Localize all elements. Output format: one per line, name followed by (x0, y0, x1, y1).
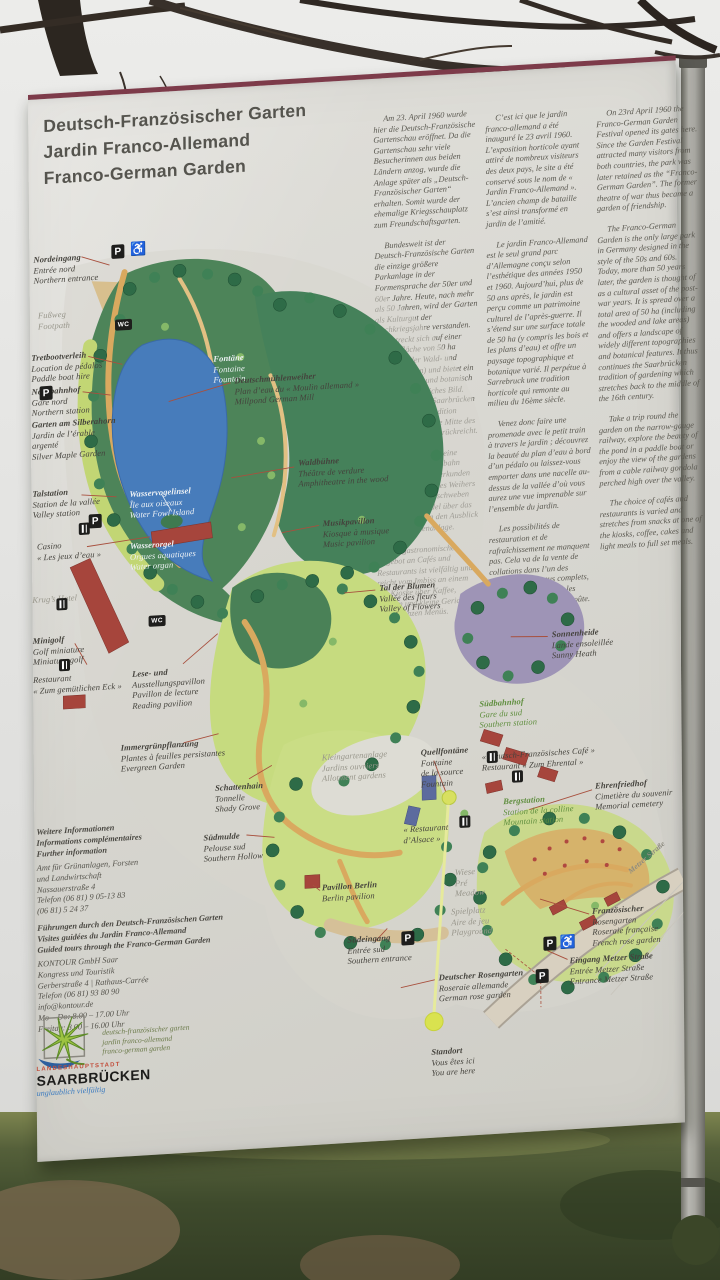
restaurant-icon (59, 659, 70, 672)
map-label-you-are-here: Standort Vous êtes ici You are here (431, 1044, 477, 1078)
parking-icon: P (89, 514, 102, 529)
restaurant-icon (487, 751, 498, 764)
restaurant-icon (459, 815, 470, 828)
saarbruecken-logo: LANDESHAUPTSTADT SAARBRÜCKEN unglaublich… (36, 1059, 150, 1099)
map-label-water-fowl-island: Wasservogelinsel Île aux oiseaux Water F… (129, 485, 196, 521)
photo-of-park-sign: Deutsch-Französischer Garten Jardin Fran… (0, 0, 720, 1280)
map-label-meadow: Wiese Pré Meadow (455, 865, 485, 898)
map-label-footpath: Fußweg Footpath (38, 309, 70, 332)
map-label-silver-maple-garden: Garten am Silberahorn Jardin de l’érable… (32, 415, 116, 462)
map-label-casino: Casino « Les jeux d’eau » (37, 538, 101, 563)
wc-icon: WC (115, 319, 132, 331)
map-label-shady-grove: Schattenhain Tonnelle Shady Grove (215, 780, 263, 814)
wc-icon: WC (149, 615, 166, 627)
parking-icon: P (401, 931, 414, 946)
you-are-here-dot (425, 1012, 443, 1031)
map-label-sunny-heath: Sonnenheide Lande ensoleillée Sunny Heat… (552, 625, 615, 660)
map-label-evergreen-garden: Immergrünpflanzung Plantes à feuilles pe… (121, 736, 228, 774)
map-label-amphitheatre: Waldbühne Théâtre de verdure Amphitheatr… (298, 452, 392, 489)
map-label-metzer-strasse-entrance: Eingang Metzer Straße Entrée Metzer Stra… (570, 950, 656, 987)
map-label-berlin-pavilion: Pavillon Berlin Berlin pavilion (322, 879, 377, 903)
parking-icon: P (111, 244, 124, 259)
map-label-water-organ: Wasserorgel Orgues aquatiques Water orga… (130, 537, 198, 573)
wheelchair-icon: ♿ (559, 935, 575, 949)
garden-logo-script: deutsch-französischer garten jardin fran… (102, 1023, 190, 1057)
board-title: Deutsch-Französischer Garten Jardin Fran… (43, 97, 307, 191)
parks-office-contact: Amt für Grünanlagen, Forsten und Landwir… (37, 858, 139, 918)
parking-icon: P (543, 936, 556, 951)
map-label-german-rose-garden: Deutscher Rosengarten Roseraie allemande… (439, 967, 524, 1004)
map-label-mountain-station: Bergstation Station de la colline Mounta… (503, 792, 575, 828)
map-label-southern-hollow: Südmulde Pelouse sud Southern Hollow (203, 829, 265, 864)
map-label-spring-fountain: Quellfontäne Fontaine de la source Fount… (421, 744, 469, 789)
information-board: Deutsch-Französischer Garten Jardin Fran… (28, 55, 685, 1162)
grass-tuft (672, 1215, 720, 1265)
map-label-north-entrance: Nordeingang Entrée nord Northern entranc… (33, 251, 100, 287)
parking-icon: P (536, 969, 549, 984)
map-label-music-pavilion: Musikpavillon Kiosque à musique Music pa… (323, 514, 392, 550)
sign-post-bracket (681, 1178, 705, 1187)
restaurant-icon (79, 522, 90, 535)
map-label-allotment-gardens: Kleingartenanlage Jardins ouvriers Allot… (322, 748, 388, 784)
map-label-paddle-boat-hire: Tretbootverleih Location de pédalos Padd… (31, 349, 103, 385)
map-label-valley-of-flowers: Tal der Blumen Vallée des fleurs Valley … (379, 579, 442, 614)
restaurant-icon (56, 598, 67, 611)
restaurant-icon (512, 770, 523, 783)
paragraph: On 23rd April 1960 the Franco-German Gar… (596, 103, 700, 215)
wheelchair-icon: ♿ (130, 242, 146, 256)
map-label-french-rose-garden: Französischer Rosengarten Roseraie franç… (592, 900, 683, 948)
further-information-heading: Weitere Informationen Informations compl… (36, 821, 142, 860)
map-label-southern-station: Südbahnhof Gare du sud Southern station (479, 695, 539, 730)
map-label-memorial-cemetery: Ehrenfriedhof Cimetière du souvenir Memo… (595, 776, 675, 812)
map-label-restaurant-alsace: « Restaurant d’Alsace » (403, 822, 448, 846)
map-label-reading-pavilion: Lese- und Ausstellungspavillon Pavillon … (132, 664, 208, 711)
parking-icon: P (40, 386, 53, 401)
map-label-playground: Spielplatz Aire de jeu Playground (451, 904, 492, 938)
